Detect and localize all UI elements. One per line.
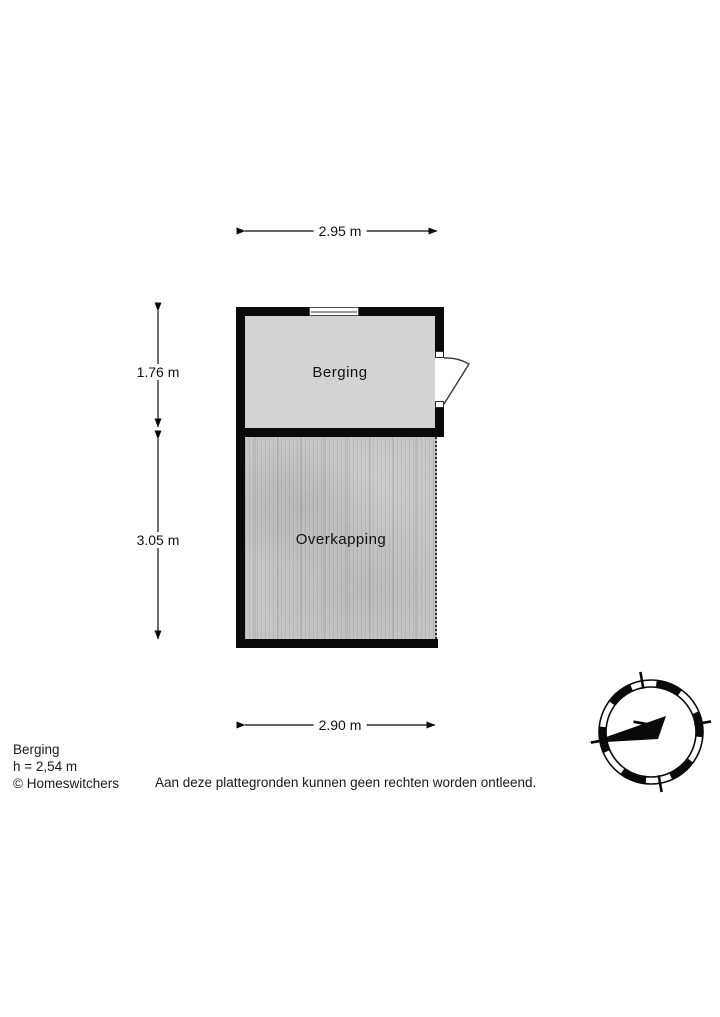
footer-info: Berging h = 2,54 m © Homeswitchers — [13, 741, 119, 792]
dim-label-left-upper: 1.76 m — [132, 364, 185, 380]
door-swing-icon — [444, 358, 469, 404]
room-label-overkapping: Overkapping — [245, 531, 437, 548]
plan-vector-layer: N — [0, 0, 720, 1017]
dimension-lines — [158, 231, 437, 725]
floor-plan: N Berging Overkapping 2.95 m 1.76 m 3.05… — [0, 0, 720, 1017]
room-label-berging: Berging — [245, 364, 435, 381]
disclaimer-text: Aan deze plattegronden kunnen geen recht… — [155, 775, 536, 790]
dim-label-bottom: 2.90 m — [314, 717, 367, 733]
footer-height: h = 2,54 m — [13, 758, 119, 775]
footer-room-name: Berging — [13, 741, 119, 758]
dim-label-top: 2.95 m — [314, 223, 367, 239]
footer-copyright: © Homeswitchers — [13, 775, 119, 792]
dim-label-left-lower: 3.05 m — [132, 532, 185, 548]
compass-icon: N — [580, 661, 720, 802]
